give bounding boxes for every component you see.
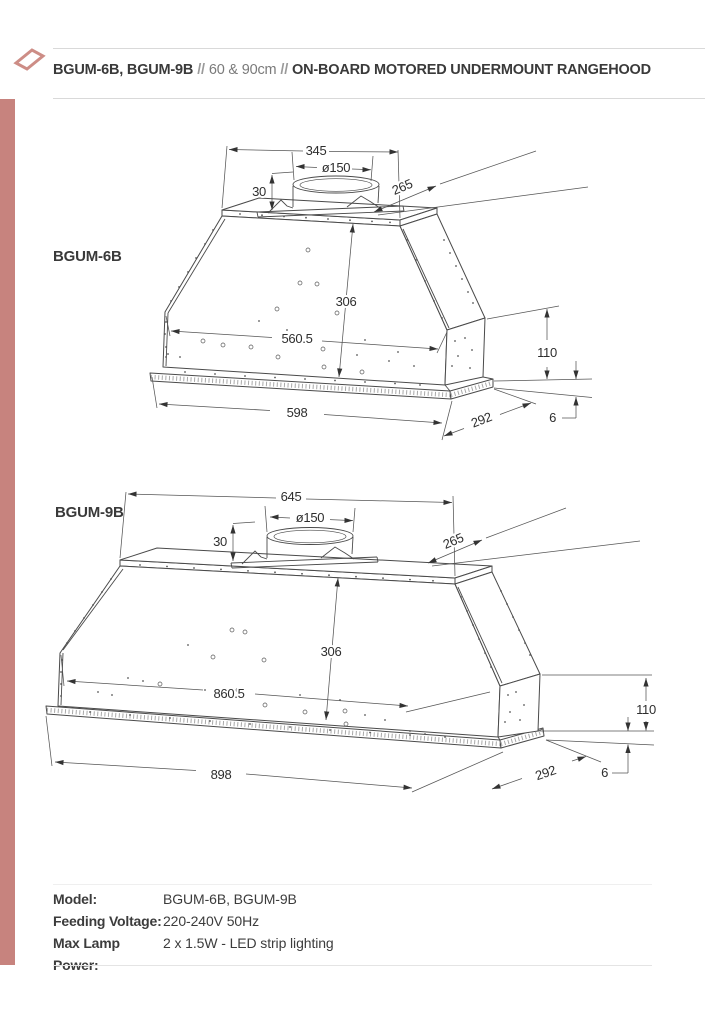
- rivet-dot: [164, 333, 166, 335]
- rivet-dot: [484, 652, 486, 654]
- rivet-dot: [212, 229, 214, 231]
- rivet-dot: [60, 671, 62, 673]
- screw-hole: [262, 658, 266, 662]
- rivet-dot: [464, 337, 466, 339]
- rivet-dot: [92, 604, 94, 606]
- rivet-dot: [301, 573, 303, 575]
- rivet-dot: [327, 218, 329, 220]
- dimension-line: [412, 752, 503, 792]
- rivet-dot: [74, 630, 76, 632]
- dimension-arrow: [577, 754, 587, 762]
- rivet-dot: [165, 356, 167, 358]
- screw-hole: [315, 282, 319, 286]
- rivet-dot: [261, 214, 263, 216]
- dimension-arrow: [625, 723, 630, 732]
- rivet-dot: [461, 278, 463, 280]
- rivet-dot: [165, 346, 167, 348]
- dimension-arrow: [473, 538, 483, 546]
- spec-sheet-page: { "page": { "accent_color": "#c7837e" },…: [0, 0, 720, 1018]
- dimension-arrow: [427, 184, 437, 192]
- rivet-dot: [184, 371, 186, 373]
- rivet-dot: [289, 726, 291, 728]
- dimension-line: [306, 499, 452, 503]
- drawing-bgum-9b: 645ø15030265306860.51108982926: [46, 489, 656, 792]
- rivet-dot: [523, 704, 525, 706]
- rivet-dot: [478, 638, 480, 640]
- dimension-arrow: [229, 147, 238, 152]
- screw-hole: [321, 347, 325, 351]
- screw-hole: [298, 281, 302, 285]
- rivet-dot: [460, 596, 462, 598]
- screw-hole: [306, 248, 310, 252]
- screw-hole: [249, 345, 253, 349]
- rivet-dot: [328, 574, 330, 576]
- rivet-dot: [512, 616, 514, 618]
- screw-hole: [343, 709, 347, 713]
- dimension-line: [128, 494, 276, 498]
- rivet-dot: [432, 580, 434, 582]
- dimension-arrow: [573, 397, 578, 406]
- rivet-dot: [169, 717, 171, 719]
- screw-hole: [335, 311, 339, 315]
- dimension-line: [222, 146, 227, 208]
- rivet-dot: [472, 302, 474, 304]
- dimension-label: 30: [213, 534, 227, 549]
- dimension-line: [246, 774, 412, 788]
- dimension-line: [486, 508, 566, 538]
- rivet-dot: [454, 340, 456, 342]
- rivet-dot: [449, 252, 451, 254]
- rivet-dot: [457, 355, 459, 357]
- rivet-dot: [469, 367, 471, 369]
- rivet-dot: [355, 576, 357, 578]
- spec-row-model: Model: BGUM-6B, BGUM-9B: [53, 888, 613, 910]
- rivet-dot: [519, 719, 521, 721]
- rivet-dot: [187, 271, 189, 273]
- dimension-label: 560.5: [281, 331, 312, 346]
- dimension-label: 898: [211, 767, 232, 782]
- rivet-dot: [166, 566, 168, 568]
- rivet-dot: [490, 666, 492, 668]
- drawing-bgum-6b: 345ø15030265306560.51105982926: [150, 143, 592, 440]
- dimension-line: [494, 379, 592, 381]
- rivet-dot: [524, 642, 526, 644]
- rivet-dot: [247, 570, 249, 572]
- rivet-dot: [60, 683, 62, 685]
- rivet-dot: [433, 300, 435, 302]
- rivet-dot: [371, 221, 373, 223]
- rivet-dot: [466, 610, 468, 612]
- rivet-dot: [110, 578, 112, 580]
- dimension-arrow: [625, 745, 630, 754]
- rivet-dot: [518, 629, 520, 631]
- rivet-dot: [249, 723, 251, 725]
- dimension-arrow: [55, 759, 64, 765]
- dimension-arrow: [128, 491, 137, 496]
- dimension-label: 292: [469, 409, 494, 430]
- dimension-label: 306: [321, 644, 342, 659]
- dimension-line: [371, 156, 373, 181]
- rivet-dot: [299, 694, 301, 696]
- spec-row-lamp: Max Lamp Power: 2 x 1.5W - LED strip lig…: [53, 932, 613, 976]
- dimension-line: [120, 492, 126, 558]
- dimension-arrow: [362, 167, 371, 172]
- dimension-line: [265, 506, 267, 532]
- spec-value: BGUM-6B, BGUM-9B: [163, 888, 613, 910]
- spec-label: Feeding Voltage:: [53, 910, 163, 932]
- rivet-dot: [204, 243, 206, 245]
- dimension-line: [546, 740, 601, 762]
- rivet-dot: [89, 711, 91, 713]
- rivet-dot: [187, 644, 189, 646]
- rivet-dot: [441, 317, 443, 319]
- dimension-arrow: [544, 309, 549, 318]
- rivet-dot: [364, 381, 366, 383]
- dimension-label: 306: [336, 294, 357, 309]
- rivet-dot: [193, 567, 195, 569]
- drawing-line: [445, 385, 450, 391]
- dimension-line: [440, 151, 536, 184]
- screw-hole: [201, 339, 205, 343]
- rivet-dot: [129, 714, 131, 716]
- rivet-dot: [389, 222, 391, 224]
- rivet-dot: [506, 603, 508, 605]
- dimension-arrow: [443, 431, 453, 439]
- rivet-dot: [419, 384, 421, 386]
- rivet-dot: [139, 564, 141, 566]
- dimension-label: 30: [252, 184, 266, 199]
- dimension-label: 860.5: [213, 686, 244, 701]
- dimension-arrow: [443, 500, 452, 505]
- dimension-line: [55, 762, 196, 771]
- rivet-dot: [244, 375, 246, 377]
- dimension-line: [229, 150, 303, 152]
- screw-hole: [158, 682, 162, 686]
- rivet-dot: [204, 689, 206, 691]
- dimension-arrow: [573, 371, 578, 380]
- drawing-line: [378, 186, 379, 203]
- rivet-dot: [415, 259, 417, 261]
- screw-hole: [344, 722, 348, 726]
- rivet-dot: [451, 365, 453, 367]
- dimension-arrow: [403, 785, 412, 791]
- rivet-dot: [178, 286, 180, 288]
- dimension-arrow: [159, 401, 168, 407]
- dimension-arrow: [643, 722, 648, 731]
- dimension-line: [324, 415, 442, 424]
- rivet-dot: [214, 373, 216, 375]
- rivet-dot: [274, 377, 276, 379]
- rivet-dot: [83, 617, 85, 619]
- dimension-arrow: [433, 420, 442, 426]
- rivet-dot: [504, 721, 506, 723]
- rivet-dot: [424, 280, 426, 282]
- dimension-arrow: [269, 175, 274, 184]
- rivet-dot: [384, 719, 386, 721]
- rivet-dot: [382, 577, 384, 579]
- rivet-dot: [369, 732, 371, 734]
- rivet-dot: [507, 694, 509, 696]
- rivet-dot: [179, 356, 181, 358]
- dimension-line: [46, 716, 52, 766]
- rivet-dot: [388, 360, 390, 362]
- dimension-label: 345: [306, 143, 327, 158]
- dimension-label: 6: [549, 410, 556, 425]
- dimension-arrow: [230, 525, 235, 534]
- rivet-dot: [66, 642, 68, 644]
- screw-hole: [211, 655, 215, 659]
- dimension-arrow: [643, 678, 648, 687]
- dimension-label: 265: [390, 176, 415, 198]
- dimension-line: [292, 152, 294, 180]
- rivet-dot: [334, 380, 336, 382]
- rivet-dot: [283, 216, 285, 218]
- spec-row-voltage: Feeding Voltage: 220-240V 50Hz: [53, 910, 613, 932]
- screw-hole: [275, 307, 279, 311]
- spec-table: Model: BGUM-6B, BGUM-9B Feeding Voltage:…: [53, 888, 613, 976]
- screw-hole: [230, 628, 234, 632]
- screw-hole: [276, 355, 280, 359]
- spec-value: 2 x 1.5W - LED strip lighting: [163, 932, 613, 976]
- rivet-dot: [500, 590, 502, 592]
- rivet-dot: [472, 624, 474, 626]
- spec-label: Model:: [53, 888, 163, 910]
- rivet-dot: [364, 339, 366, 341]
- rivet-dot: [127, 677, 129, 679]
- rivet-dot: [170, 300, 172, 302]
- dimension-label: ø150: [322, 160, 351, 175]
- rivet-dot: [424, 733, 426, 735]
- rivet-dot: [467, 291, 469, 293]
- rivet-dot: [142, 680, 144, 682]
- rivet-dot: [258, 320, 260, 322]
- dimension-line: [159, 404, 270, 411]
- dimension-arrow: [544, 371, 549, 380]
- screw-hole: [243, 630, 247, 634]
- rivet-dot: [364, 714, 366, 716]
- rivet-dot: [509, 711, 511, 713]
- dimension-line: [353, 508, 355, 532]
- rivet-dot: [409, 734, 411, 736]
- rivet-dot: [305, 217, 307, 219]
- spec-label: Max Lamp Power:: [53, 932, 163, 976]
- rivet-dot: [455, 265, 457, 267]
- rivet-dot: [515, 691, 517, 693]
- dimension-label: 6: [601, 765, 608, 780]
- rivet-dot: [167, 353, 169, 355]
- dimension-label: 110: [636, 702, 656, 717]
- rivet-dot: [60, 695, 62, 697]
- dimension-label: 292: [533, 762, 558, 783]
- dimension-arrow: [270, 514, 279, 519]
- rivet-dot: [413, 365, 415, 367]
- rivet-dot: [304, 378, 306, 380]
- rivet-dot: [397, 351, 399, 353]
- rivet-dot: [195, 257, 197, 259]
- dimension-arrow: [389, 149, 398, 154]
- rivet-dot: [471, 349, 473, 351]
- rivet-dot: [409, 730, 411, 732]
- dimension-label: 598: [287, 405, 308, 420]
- rivet-dot: [529, 654, 531, 656]
- rivet-dot: [111, 694, 113, 696]
- rivet-dot: [409, 579, 411, 581]
- rivet-dot: [406, 239, 408, 241]
- spec-rule-top: [53, 884, 652, 885]
- rivet-dot: [356, 354, 358, 356]
- screw-hole: [221, 343, 225, 347]
- rivet-dot: [394, 383, 396, 385]
- screw-hole: [263, 703, 267, 707]
- rivet-dot: [329, 729, 331, 731]
- rivet-dot: [274, 571, 276, 573]
- dimension-label: ø150: [296, 510, 325, 525]
- rivet-dot: [101, 591, 103, 593]
- dimension-line: [494, 388, 592, 398]
- dimension-line: [546, 740, 654, 745]
- dimension-arrow: [344, 518, 353, 523]
- hood-face: [58, 566, 500, 737]
- dimension-label: 645: [281, 489, 302, 504]
- dimension-arrow: [491, 784, 501, 792]
- screw-hole: [322, 365, 326, 369]
- screw-hole: [303, 710, 307, 714]
- rivet-dot: [444, 736, 446, 738]
- rivet-dot: [349, 219, 351, 221]
- spec-rule-bottom: [53, 965, 652, 966]
- drawing-line: [352, 537, 353, 554]
- drawing-line: [483, 377, 493, 379]
- dimension-arrow: [296, 164, 305, 169]
- rivet-dot: [239, 213, 241, 215]
- rivet-dot: [165, 321, 167, 323]
- screw-hole: [360, 370, 364, 374]
- rivet-dot: [209, 720, 211, 722]
- spec-value: 220-240V 50Hz: [163, 910, 613, 932]
- technical-drawings: 345ø15030265306560.51105982926645ø150302…: [0, 0, 720, 1018]
- dimension-line: [272, 172, 293, 174]
- rivet-dot: [97, 691, 99, 693]
- rivet-dot: [443, 239, 445, 241]
- dimension-label: 110: [537, 345, 557, 360]
- hood-face: [163, 216, 447, 385]
- dimension-line: [233, 522, 255, 524]
- rivet-dot: [220, 569, 222, 571]
- dimension-line: [329, 152, 398, 153]
